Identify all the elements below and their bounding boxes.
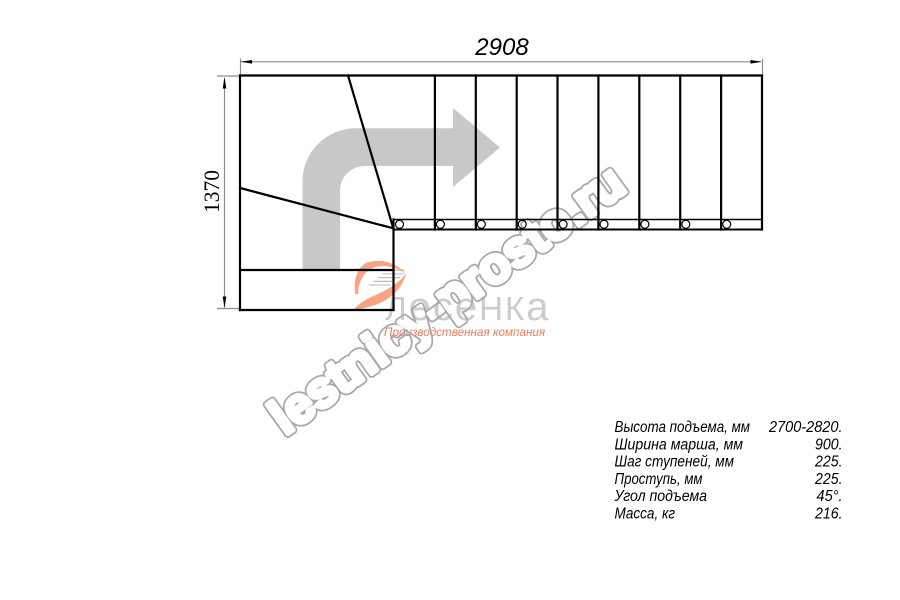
svg-text:2908: 2908: [474, 34, 529, 61]
svg-text:Проступь, мм: Проступь, мм: [615, 471, 703, 488]
svg-text:Шаг ступеней, мм: Шаг ступеней, мм: [615, 454, 735, 471]
svg-text:Масса, кг: Масса, кг: [615, 506, 676, 523]
svg-text:1370: 1370: [199, 170, 224, 213]
svg-text:225.: 225.: [814, 454, 842, 471]
svg-text:216.: 216.: [814, 506, 842, 523]
svg-text:225.: 225.: [814, 471, 842, 488]
svg-text:2700-2820.: 2700-2820.: [768, 419, 842, 436]
svg-text:900.: 900.: [815, 436, 843, 453]
svg-text:Высота подъема, мм: Высота подъема, мм: [615, 419, 751, 436]
svg-text:Угол подъема: Угол подъема: [614, 488, 708, 505]
svg-text:Ширина марша, мм: Ширина марша, мм: [615, 436, 744, 453]
svg-text:45°.: 45°.: [817, 488, 843, 505]
